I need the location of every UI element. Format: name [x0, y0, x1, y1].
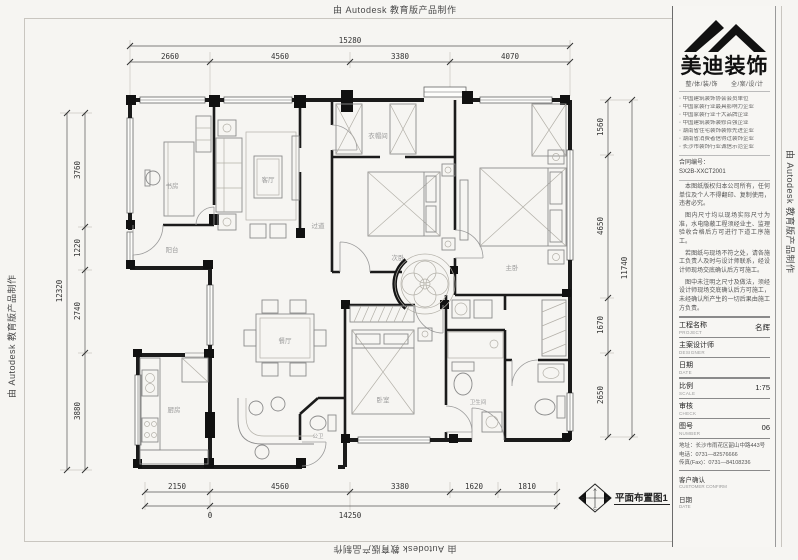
company-phone: 电话：0731—82576666	[679, 451, 770, 459]
contract-label: 合同编号：	[679, 160, 709, 166]
room-label-balcony: 阳台	[166, 245, 179, 254]
brand-slogan: 整/体/装/饰 全/案/设/计	[679, 79, 770, 92]
credential-item: 长沙市装饰行业诚信示范企业	[679, 144, 770, 152]
field-project-label-en: PROJECT	[679, 330, 753, 335]
field-date-label-en: DATE	[679, 370, 768, 375]
field-scale: 比例 SCALE 1:75	[679, 377, 770, 398]
dim-bottom-total: 14250	[339, 511, 362, 520]
field-check-label-en: CHECK	[679, 411, 768, 416]
contract-number: SX2B-XXCT2001	[679, 169, 726, 175]
compass-letter-a: A	[593, 487, 596, 492]
note-paragraph: 若图纸与现场不符之处，请各施工负责人及时与设计师联系，经设计师现场交底确认后方可…	[679, 250, 770, 276]
field-scale-label: 比例	[679, 381, 753, 391]
company-address: 地址：长沙市雨花区韶山中路443号	[679, 442, 770, 450]
credential-item: 中国家装行业最具影响力企业	[679, 104, 770, 112]
dim-right-2: 4650	[596, 216, 605, 235]
walls	[130, 100, 570, 467]
compass-letter-b: B	[605, 496, 608, 501]
room-label-hall: 过道	[312, 221, 326, 230]
dim-left-4: 3880	[73, 401, 82, 420]
customer-confirm-label-en: CUSTOMER CONFIRM	[679, 484, 770, 489]
field-number-value: 06	[762, 423, 770, 432]
brand-logo-icon	[682, 12, 768, 54]
dim-top-1: 2660	[161, 52, 180, 61]
plan-caption: 平面布置图1	[615, 492, 669, 504]
field-project: 工程名称 PROJECT 名辉	[679, 316, 770, 337]
field-designer: 主案设计师 DESIGNER	[679, 337, 770, 357]
dim-left-1: 3760	[73, 160, 82, 179]
drawing-notes: 本图纸版权归本公司所有，任何单位及个人不得翻印、复制使用，违者必究。 图内尺寸均…	[679, 180, 770, 314]
field-designer-label-en: DESIGNER	[679, 350, 768, 355]
dim-top-4: 4070	[501, 52, 520, 61]
cad-sheet: 由 Autodesk 教育版产品制作 由 Autodesk 教育版产品制作 由 …	[0, 0, 798, 560]
dim-right-1: 1560	[596, 117, 605, 136]
dim-right-4: 2650	[596, 385, 605, 404]
title-block: 美迪装饰 整/体/装/饰 全/案/设/计 中国建筑装饰协会会员单位 中国家装行业…	[672, 6, 776, 547]
field-scale-value: 1:75	[755, 383, 770, 392]
company-address-block: 地址：长沙市雨花区韶山中路443号 电话：0731—82576666 传真(Fa…	[679, 438, 770, 470]
customer-date-label: 日期	[679, 494, 770, 504]
credential-item: 中国建筑装饰装修百强企业	[679, 120, 770, 128]
field-date-label: 日期	[679, 360, 768, 370]
dim-right-total: 11740	[620, 256, 629, 279]
credential-item: 湖南省住宅装饰装修先进企业	[679, 128, 770, 136]
room-labels: 书房 客厅 阳台 衣帽间 次卧 主卧 过道 餐厅 厨房 卧室 卫生间 公卫	[166, 131, 520, 440]
room-label-cloak: 衣帽间	[368, 131, 388, 140]
customer-confirm-label: 客户确认	[679, 474, 770, 484]
credential-item: 中国建筑装饰协会会员单位	[679, 96, 770, 104]
dim-bottom-origin: 0	[208, 511, 213, 520]
field-project-value: 名辉	[755, 322, 770, 333]
brand-name: 美迪装饰	[679, 56, 770, 78]
room-label-powder: 公卫	[312, 433, 324, 440]
field-designer-label: 主案设计师	[679, 340, 768, 350]
customer-date-label-en: DATE	[679, 504, 770, 509]
brand-credentials: 中国建筑装饰协会会员单位 中国家装行业最具影响力企业 中国家装行业十大品牌企业 …	[679, 96, 770, 152]
credential-item: 中国家装行业十大品牌企业	[679, 112, 770, 120]
room-label-study: 书房	[166, 181, 179, 190]
dim-right-3: 1670	[596, 315, 605, 334]
company-fax: 传真(Fax)：0731—84108236	[679, 459, 770, 467]
dim-left-2: 1220	[73, 238, 82, 257]
room-label-master: 主卧	[506, 263, 520, 272]
dim-left-3: 2740	[73, 301, 82, 320]
field-scale-label-en: SCALE	[679, 391, 753, 396]
field-number-label-en: NUMBER	[679, 431, 760, 436]
contract-number-block: 合同编号： SX2B-XXCT2001	[679, 155, 770, 177]
dim-bottom-3: 3380	[391, 482, 410, 491]
note-paragraph: 图中未注明之尺寸及做法，须经设计师现场交底确认后方可施工，未经确认所产生的一切后…	[679, 279, 770, 314]
room-label-bedroom2: 次卧	[392, 253, 406, 262]
field-date: 日期 DATE	[679, 357, 770, 377]
customer-confirm-block: 客户确认 CUSTOMER CONFIRM 日期 DATE	[679, 470, 770, 509]
dim-top-2: 4560	[271, 52, 290, 61]
note-paragraph: 图内尺寸均以现场实际尺寸为准，水电隐蔽工程须经业主、监理验收合格后方可进行下道工…	[679, 212, 770, 247]
room-label-dining: 餐厅	[279, 336, 293, 345]
dim-left-total: 12320	[55, 279, 64, 302]
index-symbol: A B C D 平面布置图1	[579, 484, 670, 512]
room-label-bath: 卫生间	[470, 398, 487, 406]
room-label-living: 客厅	[262, 175, 276, 184]
field-number-label: 图号	[679, 421, 760, 431]
field-check: 审核 CHECK	[679, 398, 770, 418]
field-number: 图号 NUMBER 06	[679, 418, 770, 438]
credential-item: 湖南省消费者信得过装饰企业	[679, 136, 770, 144]
dim-top-total: 15280	[339, 36, 362, 45]
dim-bottom-5: 1810	[518, 482, 537, 491]
note-paragraph: 本图纸版权归本公司所有，任何单位及个人不得翻印、复制使用，违者必究。	[679, 183, 770, 209]
field-project-label: 工程名称	[679, 320, 753, 330]
room-label-kitchen: 厨房	[168, 405, 181, 414]
dim-top-3: 3380	[391, 52, 410, 61]
dim-bottom-2: 4560	[271, 482, 290, 491]
room-label-bedroom3: 卧室	[377, 395, 391, 404]
field-check-label: 审核	[679, 401, 768, 411]
dim-bottom-1: 2150	[168, 482, 187, 491]
dim-bottom-4: 1620	[465, 482, 484, 491]
